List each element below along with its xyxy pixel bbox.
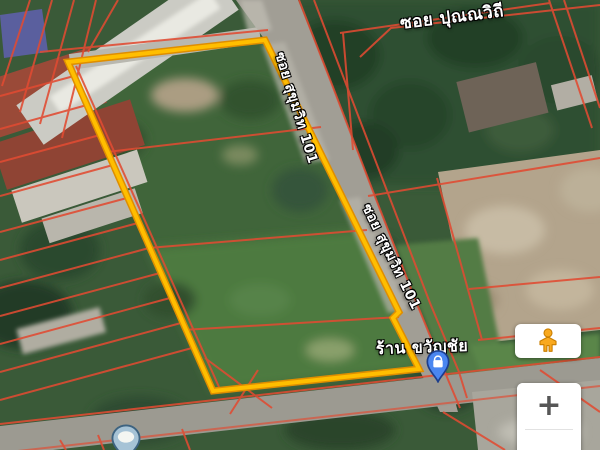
shopping-bag-icon <box>433 360 442 367</box>
secondary-pin-icon <box>110 424 143 450</box>
zoom-control: + − <box>517 383 581 450</box>
pegman-icon <box>535 328 561 354</box>
map-viewport[interactable]: ซอย สุขุมวิท 101 ซอย สุขุมวิท 101 ซอย ปุ… <box>0 0 600 450</box>
zoom-in-button[interactable]: + <box>517 383 581 429</box>
secondary-pin-center <box>118 431 134 442</box>
shop-pin[interactable] <box>425 350 452 383</box>
satellite-imagery <box>0 0 600 450</box>
pegman-button[interactable] <box>515 324 581 358</box>
zoom-out-button[interactable]: − <box>517 430 581 450</box>
secondary-pin[interactable] <box>110 424 143 450</box>
shop-pin-icon <box>425 350 452 383</box>
